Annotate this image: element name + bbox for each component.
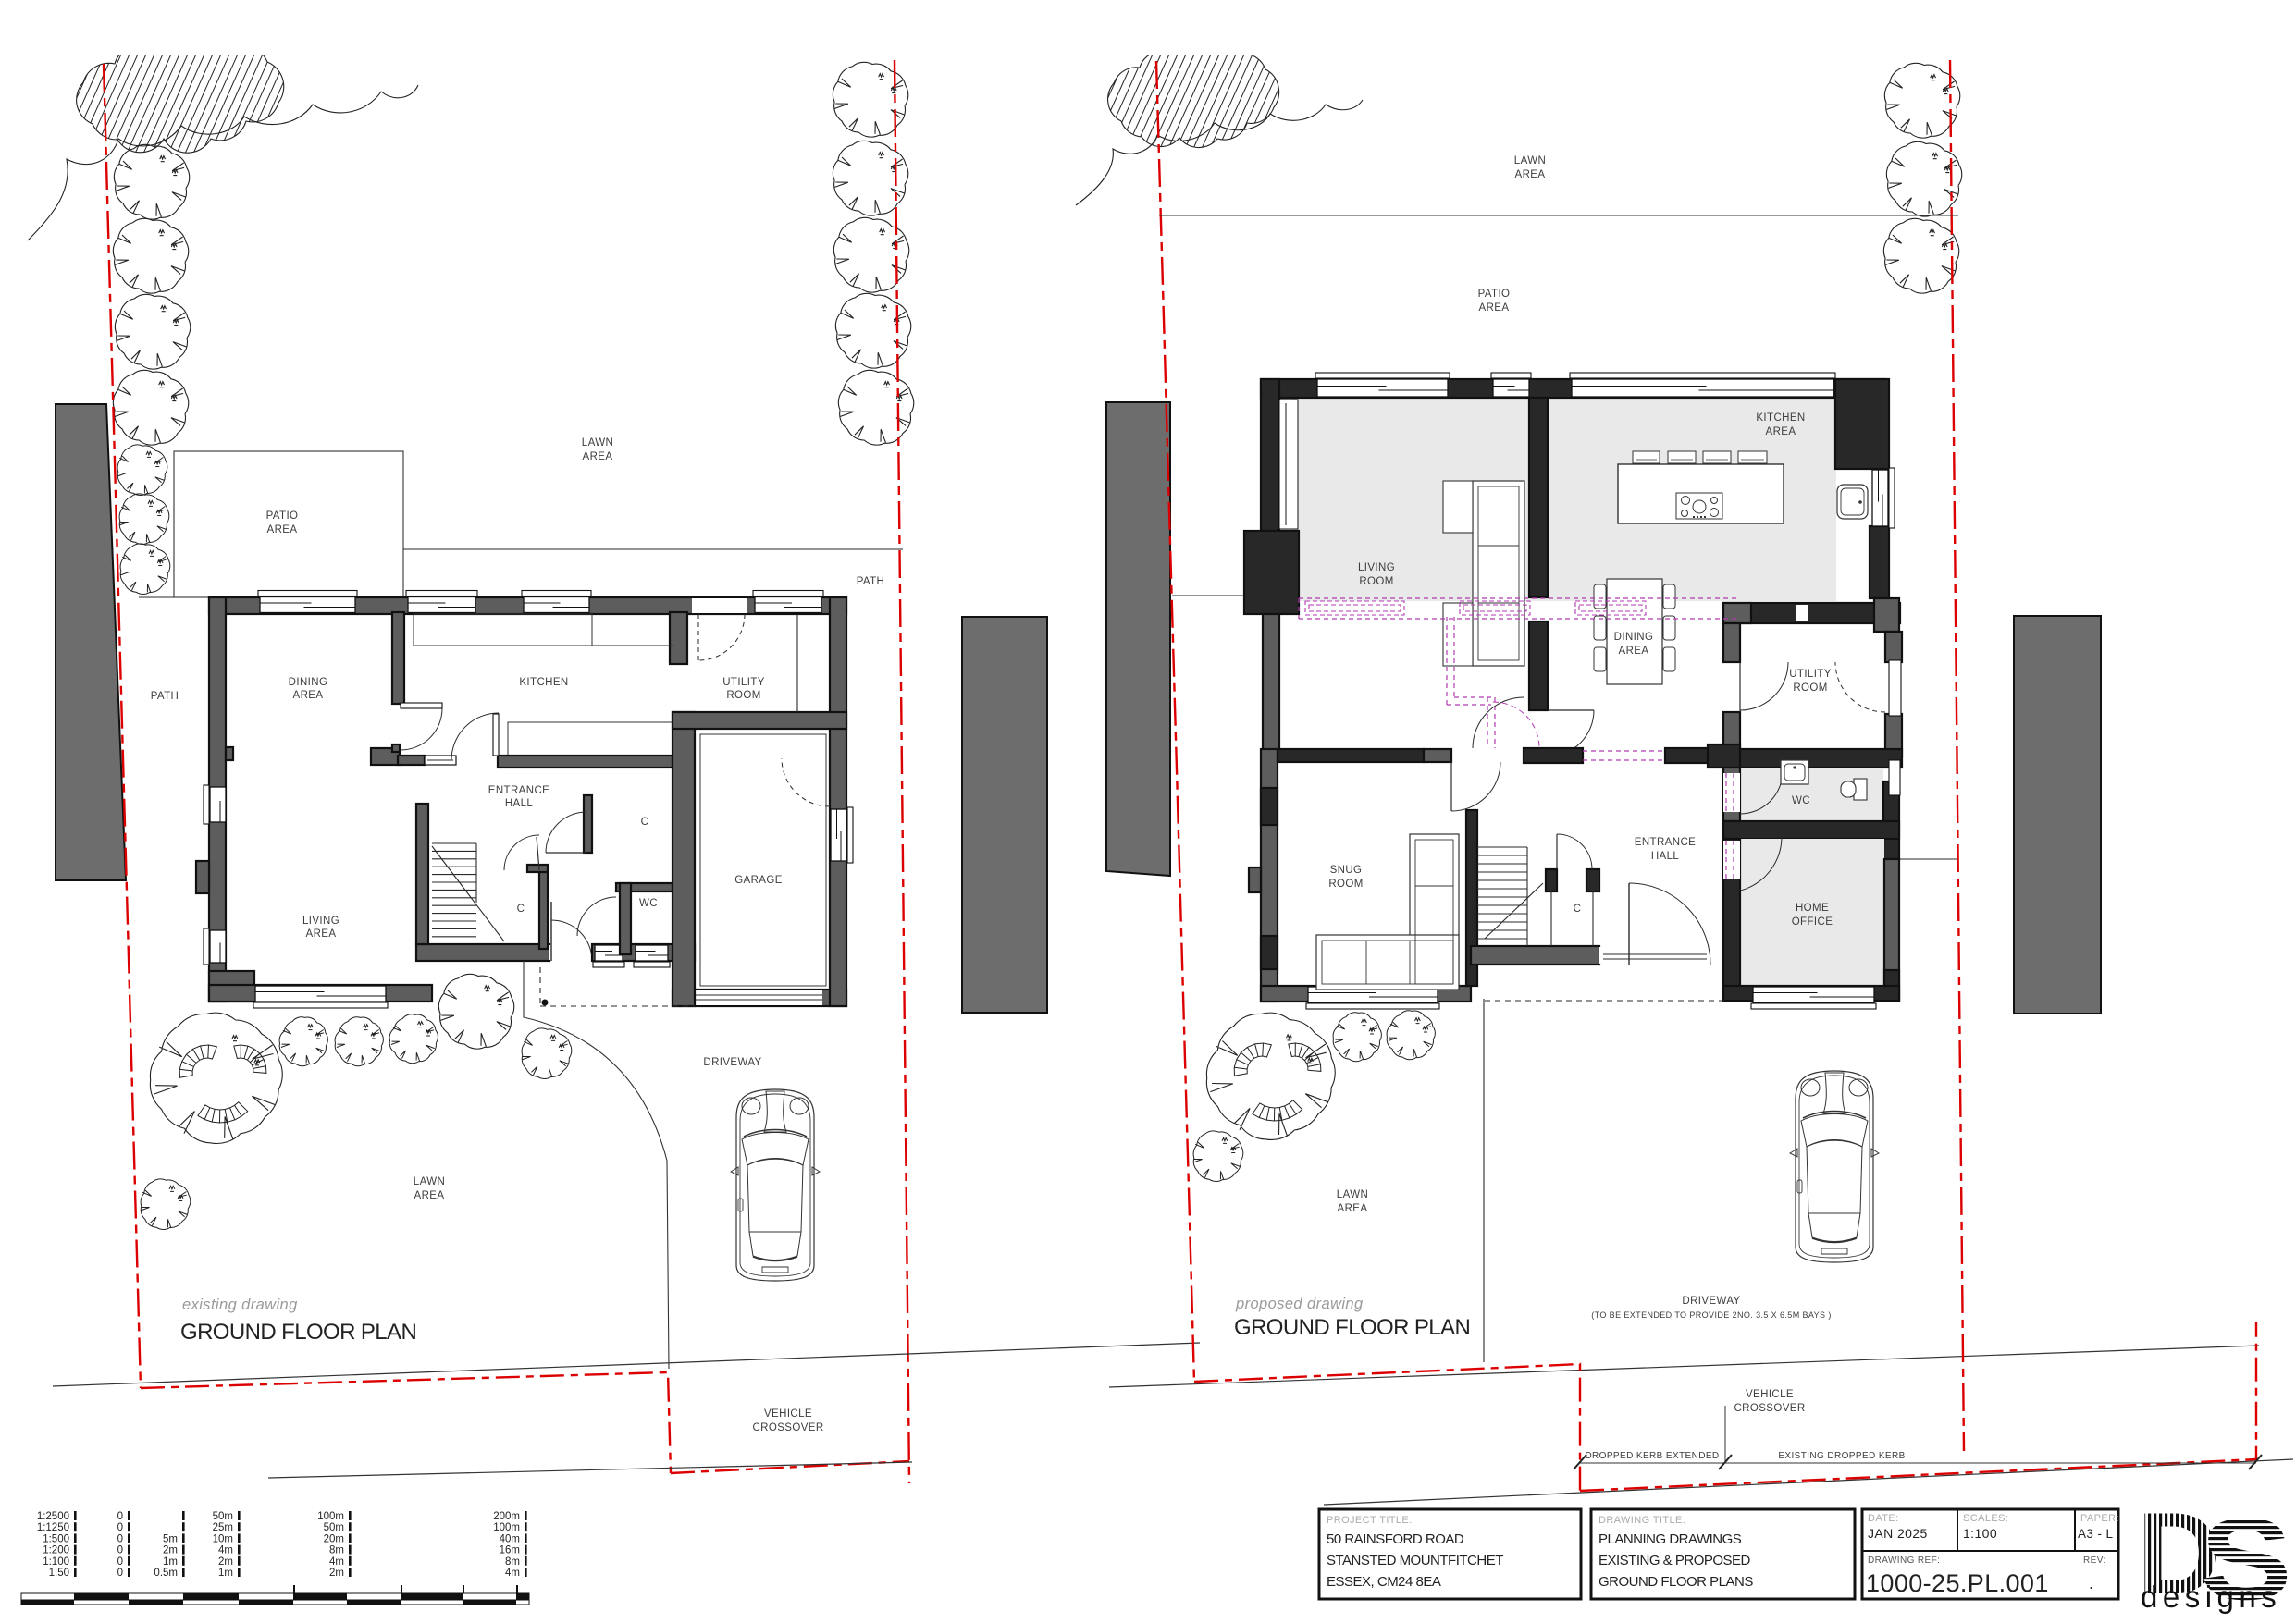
- svg-text:DROPPED KERB EXTENDED: DROPPED KERB EXTENDED: [1585, 1451, 1719, 1461]
- svg-text:SCALES:: SCALES:: [1963, 1513, 2008, 1524]
- svg-text:AREA: AREA: [1766, 426, 1796, 437]
- svg-text:KITCHEN: KITCHEN: [1756, 412, 1805, 424]
- svg-text:AREA: AREA: [293, 690, 324, 701]
- svg-text:C: C: [641, 817, 649, 828]
- svg-text:AREA: AREA: [583, 451, 613, 462]
- svg-text:C: C: [517, 904, 525, 915]
- svg-text:1:500: 1:500: [43, 1533, 69, 1544]
- svg-text:AREA: AREA: [1479, 302, 1510, 314]
- svg-text:4m: 4m: [329, 1556, 344, 1568]
- svg-text:EXISTING DROPPED KERB: EXISTING DROPPED KERB: [1778, 1451, 1905, 1461]
- svg-text:1:1250: 1:1250: [37, 1522, 69, 1533]
- svg-text:C: C: [1574, 904, 1582, 915]
- svg-text:ROOM: ROOM: [1359, 576, 1393, 587]
- svg-text:LAWN: LAWN: [1514, 155, 1546, 166]
- svg-text:LIVING: LIVING: [1358, 562, 1395, 573]
- svg-text:8m: 8m: [329, 1545, 344, 1556]
- svg-text:GROUND FLOOR PLANS: GROUND FLOOR PLANS: [1599, 1574, 1753, 1590]
- svg-text:CROSSOVER: CROSSOVER: [1734, 1403, 1805, 1414]
- svg-text:100m: 100m: [493, 1522, 520, 1533]
- svg-text:.: .: [2089, 1574, 2093, 1592]
- svg-text:DRAWING REF:: DRAWING REF:: [1868, 1555, 1940, 1566]
- svg-text:100m: 100m: [317, 1511, 344, 1522]
- svg-text:CROSSOVER: CROSSOVER: [752, 1422, 823, 1433]
- svg-text:1:50: 1:50: [49, 1568, 69, 1579]
- svg-text:ROOM: ROOM: [1328, 879, 1363, 890]
- svg-text:8m: 8m: [505, 1556, 520, 1568]
- svg-text:PLANNING DRAWINGS: PLANNING DRAWINGS: [1599, 1531, 1742, 1547]
- svg-text:0: 0: [117, 1533, 123, 1544]
- svg-text:0.5m: 0.5m: [154, 1568, 178, 1579]
- svg-text:proposed drawing: proposed drawing: [1235, 1296, 1364, 1312]
- svg-text:50 RAINSFORD ROAD: 50 RAINSFORD ROAD: [1327, 1531, 1464, 1547]
- svg-text:PATIO: PATIO: [1478, 289, 1511, 300]
- svg-text:REV:: REV:: [2083, 1555, 2106, 1566]
- svg-text:4m: 4m: [505, 1568, 520, 1579]
- svg-text:LAWN: LAWN: [414, 1176, 445, 1187]
- svg-text:2m: 2m: [329, 1568, 344, 1579]
- svg-text:20m: 20m: [324, 1533, 344, 1544]
- svg-text:LAWN: LAWN: [1337, 1189, 1368, 1200]
- svg-text:AREA: AREA: [1515, 169, 1546, 180]
- svg-text:DRIVEWAY: DRIVEWAY: [703, 1057, 761, 1068]
- svg-text:1:200: 1:200: [43, 1545, 69, 1556]
- svg-text:1:100: 1:100: [43, 1556, 69, 1568]
- svg-text:0: 0: [117, 1568, 123, 1579]
- svg-text:ENTRANCE: ENTRANCE: [1635, 837, 1696, 848]
- svg-text:STANSTED MOUNTFITCHET: STANSTED MOUNTFITCHET: [1327, 1553, 1503, 1568]
- svg-text:SNUG: SNUG: [1330, 865, 1363, 876]
- svg-text:DINING: DINING: [289, 677, 328, 688]
- svg-text:200m: 200m: [493, 1511, 520, 1522]
- svg-text:ROOM: ROOM: [1793, 682, 1827, 694]
- svg-text:KITCHEN: KITCHEN: [519, 677, 568, 688]
- svg-text:GARAGE: GARAGE: [734, 875, 783, 886]
- svg-text:25m: 25m: [213, 1522, 233, 1533]
- svg-text:ENTRANCE: ENTRANCE: [488, 785, 549, 796]
- svg-text:existing drawing: existing drawing: [182, 1297, 298, 1313]
- svg-text:40m: 40m: [500, 1533, 520, 1544]
- svg-text:PATIO: PATIO: [266, 510, 299, 522]
- svg-text:(TO BE EXTENDED TO PROVIDE 2NO: (TO BE EXTENDED TO PROVIDE 2NO. 3.5 X 6.…: [1591, 1310, 1832, 1320]
- svg-text:16m: 16m: [500, 1545, 520, 1556]
- svg-text:JAN 2025: JAN 2025: [1868, 1526, 1928, 1541]
- svg-text:A3 - L: A3 - L: [2078, 1527, 2114, 1541]
- svg-text:DINING: DINING: [1614, 632, 1654, 643]
- svg-text:UTILITY: UTILITY: [722, 677, 765, 688]
- svg-text:1:2500: 1:2500: [37, 1511, 69, 1522]
- svg-text:DRIVEWAY: DRIVEWAY: [1682, 1296, 1740, 1307]
- svg-text:GROUND FLOOR PLAN: GROUND FLOOR PLAN: [1234, 1315, 1470, 1340]
- svg-text:1000-25.PL.001: 1000-25.PL.001: [1866, 1569, 2049, 1597]
- svg-text:DRAWING TITLE:: DRAWING TITLE:: [1599, 1515, 1685, 1526]
- svg-text:5m: 5m: [163, 1533, 178, 1544]
- svg-text:AREA: AREA: [1619, 646, 1649, 657]
- svg-text:1:100: 1:100: [1963, 1526, 1997, 1541]
- svg-text:designs: designs: [2141, 1580, 2281, 1614]
- svg-text:0: 0: [117, 1511, 123, 1522]
- svg-text:2m: 2m: [163, 1545, 178, 1556]
- svg-text:HALL: HALL: [505, 798, 534, 809]
- svg-text:VEHICLE: VEHICLE: [764, 1408, 812, 1420]
- svg-text:HALL: HALL: [1651, 851, 1680, 862]
- svg-text:PAPER:: PAPER:: [2080, 1513, 2119, 1524]
- svg-text:ESSEX, CM24 8EA: ESSEX, CM24 8EA: [1327, 1574, 1441, 1590]
- svg-text:UTILITY: UTILITY: [1789, 669, 1832, 680]
- svg-text:4m: 4m: [218, 1545, 233, 1556]
- svg-text:VEHICLE: VEHICLE: [1746, 1389, 1794, 1400]
- svg-text:0: 0: [117, 1556, 123, 1568]
- svg-text:0: 0: [117, 1545, 123, 1556]
- svg-text:PROJECT TITLE:: PROJECT TITLE:: [1327, 1515, 1413, 1526]
- svg-text:50m: 50m: [213, 1511, 233, 1522]
- svg-text:GROUND FLOOR PLAN: GROUND FLOOR PLAN: [180, 1320, 416, 1345]
- svg-text:1m: 1m: [218, 1568, 233, 1579]
- svg-text:DATE:: DATE:: [1868, 1513, 1899, 1524]
- svg-text:HOME: HOME: [1796, 903, 1829, 914]
- svg-text:50m: 50m: [324, 1522, 344, 1533]
- svg-text:ROOM: ROOM: [726, 690, 760, 701]
- svg-text:2m: 2m: [218, 1556, 233, 1568]
- svg-text:AREA: AREA: [306, 928, 337, 940]
- svg-text:LIVING: LIVING: [302, 916, 339, 927]
- svg-text:LAWN: LAWN: [582, 437, 613, 449]
- svg-text:AREA: AREA: [267, 524, 298, 535]
- svg-text:PATH: PATH: [857, 576, 885, 587]
- svg-text:AREA: AREA: [1338, 1203, 1368, 1214]
- svg-text:1m: 1m: [163, 1556, 178, 1568]
- svg-text:0: 0: [117, 1522, 123, 1533]
- svg-text:PATH: PATH: [151, 691, 179, 702]
- svg-text:10m: 10m: [213, 1533, 233, 1544]
- svg-text:OFFICE: OFFICE: [1792, 916, 1833, 928]
- svg-text:EXISTING & PROPOSED: EXISTING & PROPOSED: [1599, 1553, 1751, 1568]
- svg-text:WC: WC: [639, 898, 658, 909]
- svg-text:WC: WC: [1792, 795, 1810, 806]
- svg-text:AREA: AREA: [414, 1190, 445, 1201]
